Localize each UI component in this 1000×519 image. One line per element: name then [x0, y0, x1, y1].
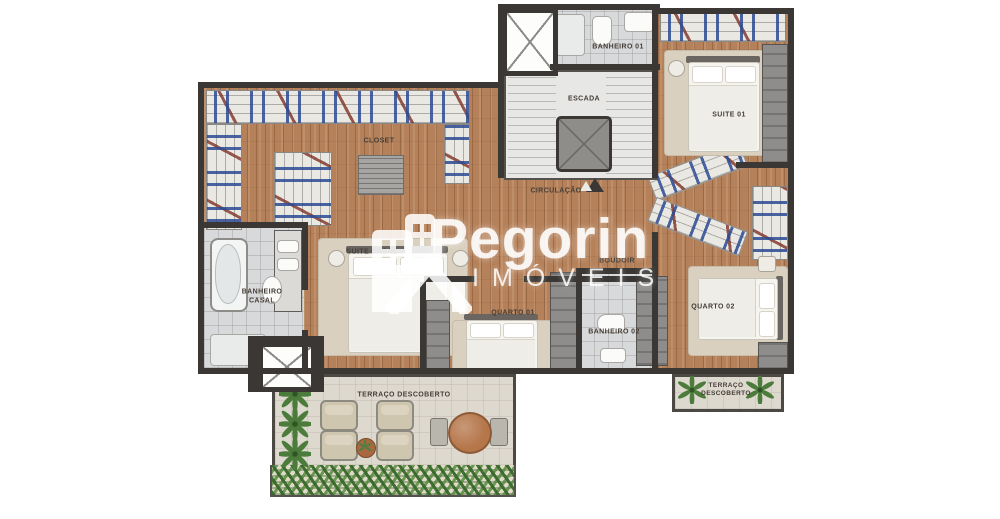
suite01-cabinet: [762, 44, 788, 164]
room-label-banheiro-casal: BANHEIRO CASAL: [234, 288, 290, 306]
lounge-chair: [320, 430, 358, 461]
toilet: [592, 16, 612, 46]
room-label-quarto01: QUARTO 01: [491, 310, 535, 319]
wall: [198, 82, 204, 374]
elevator-shaft: [504, 10, 556, 74]
room-label-escada: ESCADA: [568, 96, 600, 105]
towel: [277, 240, 299, 253]
sink: [600, 348, 626, 363]
closet-shelf-right: [444, 124, 470, 184]
closet-shelf-left: [206, 124, 242, 230]
suite01-bed: [688, 62, 760, 152]
quarto01-bed: [466, 320, 538, 372]
wall: [652, 232, 658, 368]
closet-shelf-island: [274, 152, 332, 226]
stairs-treads-left: [508, 72, 556, 174]
wall: [198, 368, 794, 374]
wall: [652, 70, 658, 178]
divider-cabinet: [426, 300, 450, 372]
room-label-boudoir: BOUDOIR: [599, 258, 635, 267]
room-label-terraco-small: TERRAÇO DESCOBERTO: [687, 382, 765, 398]
stair-void: [556, 116, 612, 172]
lounge-chair: [376, 430, 414, 461]
wall: [302, 330, 308, 368]
dining-chair: [430, 418, 448, 446]
wall: [424, 276, 476, 282]
palm-icon: [279, 408, 311, 440]
room-label-terraco-main: TERRAÇO DESCOBERTO: [357, 392, 450, 401]
towel: [277, 258, 299, 271]
closet-bench: [358, 155, 404, 195]
wall: [302, 228, 308, 290]
stairs-treads-right: [606, 72, 652, 174]
wall: [524, 276, 656, 282]
room-label-quarto02: QUARTO 02: [691, 304, 735, 313]
room-label-banheiro01: BANHEIRO 01: [592, 44, 643, 53]
plant-icon: [357, 439, 373, 455]
wall: [498, 4, 660, 10]
nightstand: [758, 256, 776, 272]
nightstand: [452, 250, 469, 267]
room-label-closet: CLOSET: [364, 138, 395, 147]
wall: [198, 82, 504, 88]
wall: [420, 282, 426, 368]
stairs-direction-arrow: [586, 178, 604, 192]
sink-counter: [624, 12, 654, 32]
nightstand: [668, 60, 685, 77]
round-table: [448, 412, 492, 454]
wall: [198, 222, 308, 228]
closet-shelf-top: [206, 90, 470, 124]
wall: [654, 8, 794, 14]
floor-plan-image: BANHEIRO 01 ESCADA SUITE 01 CIRCULAÇÃO C…: [0, 0, 1000, 519]
room-label-banheiro02: BANHEIRO 02: [588, 329, 639, 338]
wall: [736, 162, 792, 168]
dining-chair: [490, 418, 508, 446]
wall: [652, 4, 658, 70]
suite01-wardrobe-top: [660, 12, 786, 42]
wall: [576, 268, 582, 368]
palm-icon: [279, 438, 311, 470]
lounge-chair: [320, 400, 358, 431]
quarto02-cabinet: [758, 342, 788, 370]
room-label-suite-casal: SUITE CASAL: [346, 249, 397, 258]
wall: [576, 268, 658, 274]
nightstand: [328, 250, 345, 267]
lounge-chair: [376, 400, 414, 431]
quarto02-wardrobe: [752, 186, 788, 260]
wall: [788, 8, 794, 374]
room-label-suite01: SUITE 01: [712, 112, 746, 121]
wall: [498, 70, 504, 178]
room-label-circulacao: CIRCULAÇÃO: [530, 188, 581, 197]
wall: [550, 64, 660, 70]
